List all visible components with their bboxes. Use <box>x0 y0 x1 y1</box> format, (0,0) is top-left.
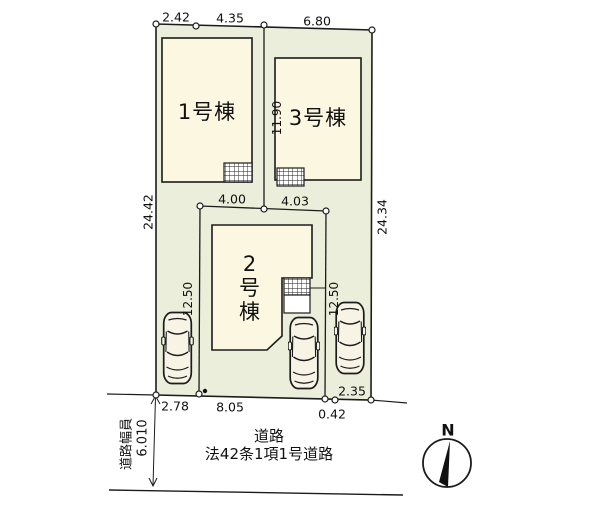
road-classification-label: 法42条1項1号道路 <box>205 445 333 463</box>
building-1-balcony-hatch <box>224 163 252 182</box>
dim-lot2-right-side: 12.50 <box>327 282 341 316</box>
dim-lot2-top-right: 4.03 <box>281 194 309 209</box>
building-3-balcony-hatch <box>277 168 304 186</box>
building-3-label: 3号棟 <box>289 106 347 130</box>
road-width-label: 道路幅員 <box>119 418 135 470</box>
dim-right-side: 24.34 <box>375 199 390 235</box>
building-2-label-char-2: 号 <box>239 276 261 300</box>
dim-bottom-1: 2.78 <box>161 399 189 414</box>
dim-top-right: 6.80 <box>303 14 331 29</box>
road-width-value: 6.010 <box>136 419 151 456</box>
building-2-porch <box>284 295 310 313</box>
road-top-edge-left <box>107 394 156 395</box>
dim-lot2-top-left: 4.00 <box>218 192 246 207</box>
dim-top-left: 2.42 <box>162 10 190 25</box>
dim-top-mid: 4.35 <box>216 11 244 26</box>
dim-left-side: 24.42 <box>141 194 156 230</box>
road-name-label: 道路 <box>254 427 284 445</box>
dim-center-vertical: 11.90 <box>270 101 284 135</box>
building-1-label: 1号棟 <box>178 100 236 124</box>
survey-point-dot <box>203 389 207 393</box>
compass-north-label: N <box>441 421 454 440</box>
north-compass: N <box>423 421 471 488</box>
road-width-dimension-line <box>149 396 160 486</box>
building-2-label-char-3: 棟 <box>239 300 261 324</box>
road-top-edge-right <box>371 400 407 403</box>
dim-lot2-left-side: 12.50 <box>181 282 195 316</box>
dim-bottom-3: 0.42 <box>318 407 346 422</box>
car-icon-left <box>162 313 194 384</box>
road-bottom-edge <box>109 490 403 495</box>
building-2-label-char-1: 2 <box>243 252 257 276</box>
dim-bottom-2: 8.05 <box>216 400 244 415</box>
building-2-balcony-hatch <box>284 278 310 295</box>
dim-bottom-4: 2.35 <box>338 384 366 399</box>
site-plan-drawing: N 2.42 4.35 6.80 24.42 24.34 11.90 4.00 … <box>0 0 600 508</box>
site-plan-svg: N 2.42 4.35 6.80 24.42 24.34 11.90 4.00 … <box>0 0 600 508</box>
car-icon-middle <box>288 318 320 389</box>
